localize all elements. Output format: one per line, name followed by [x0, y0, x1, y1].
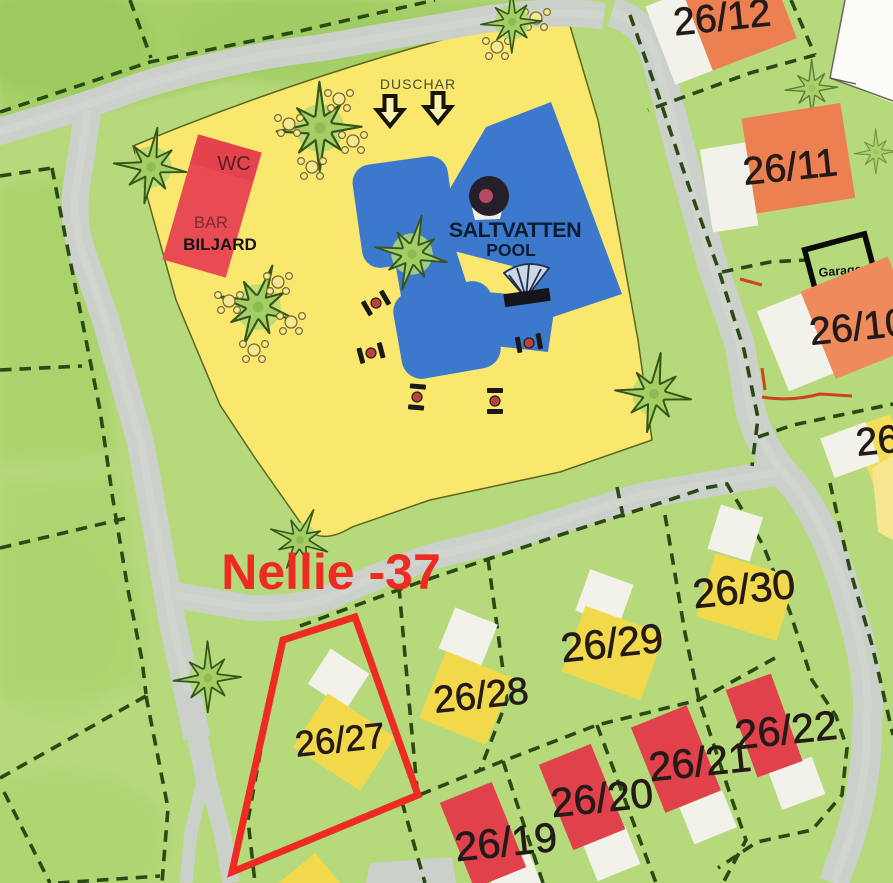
svg-text:26/10: 26/10 — [807, 301, 893, 354]
svg-text:Nellie -37: Nellie -37 — [221, 544, 441, 600]
svg-text:DUSCHAR: DUSCHAR — [380, 76, 456, 92]
svg-text:BILJARD: BILJARD — [183, 235, 257, 254]
svg-text:26/: 26/ — [854, 416, 893, 464]
svg-text:SALTVATTEN: SALTVATTEN — [449, 218, 581, 242]
svg-text:BAR: BAR — [194, 214, 228, 232]
svg-text:WC: WC — [217, 153, 250, 175]
svg-text:POOL: POOL — [486, 240, 536, 260]
